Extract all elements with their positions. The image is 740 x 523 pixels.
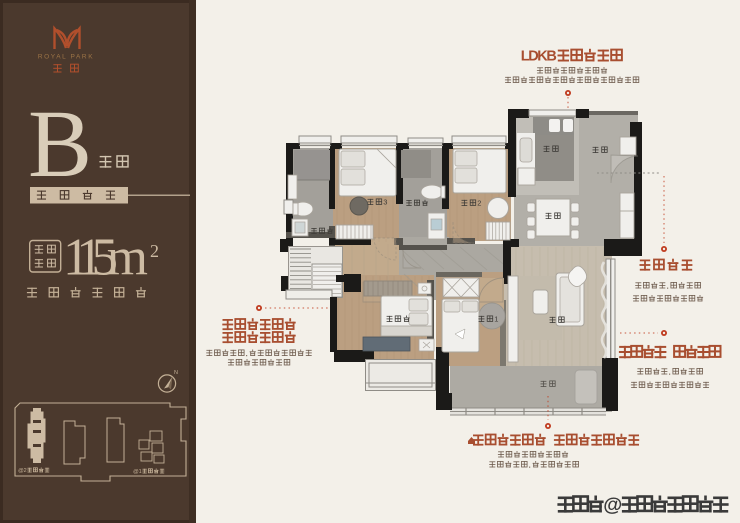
- svg-text:@1: @1: [133, 469, 142, 475]
- svg-text:2: 2: [150, 241, 159, 261]
- svg-text:2: 2: [477, 199, 481, 208]
- svg-text:1: 1: [494, 315, 498, 324]
- svg-text:B: B: [28, 90, 92, 197]
- svg-text:115m: 115m: [63, 229, 148, 287]
- svg-text:@2: @2: [18, 468, 27, 474]
- svg-text:LDKB: LDKB: [521, 48, 557, 64]
- svg-text:@: @: [603, 494, 622, 516]
- svg-text:N: N: [174, 370, 178, 376]
- svg-text:ROYAL PARK: ROYAL PARK: [38, 54, 94, 61]
- svg-text:3: 3: [383, 198, 387, 207]
